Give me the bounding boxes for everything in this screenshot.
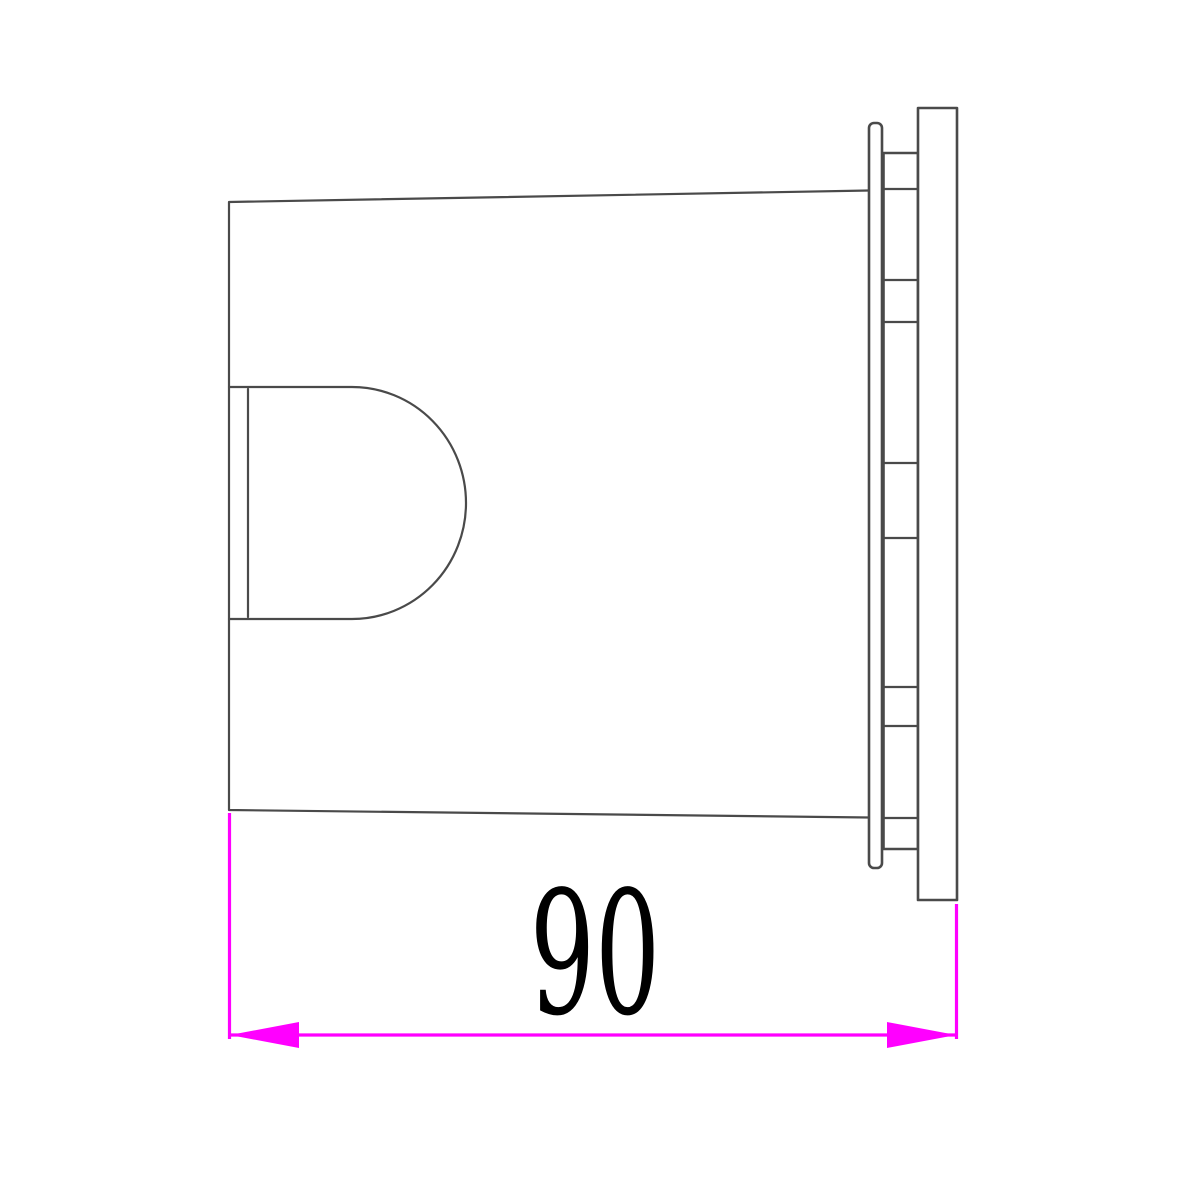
front-panel-plate — [918, 108, 957, 900]
dimension-arrow-left — [230, 1022, 299, 1048]
connector-d-profile — [229, 387, 466, 619]
dimension-label: 90 — [530, 855, 661, 1054]
mounting-frame-column — [884, 153, 919, 849]
gasket-bar — [869, 123, 882, 868]
dimension-arrow-right — [887, 1022, 956, 1048]
technical-drawing-page: 90 — [0, 0, 1200, 1200]
side-view-technical-drawing: 90 — [0, 0, 1200, 1200]
dimension-annotation: 90 — [230, 813, 957, 1054]
housing-body-outline — [229, 191, 869, 818]
